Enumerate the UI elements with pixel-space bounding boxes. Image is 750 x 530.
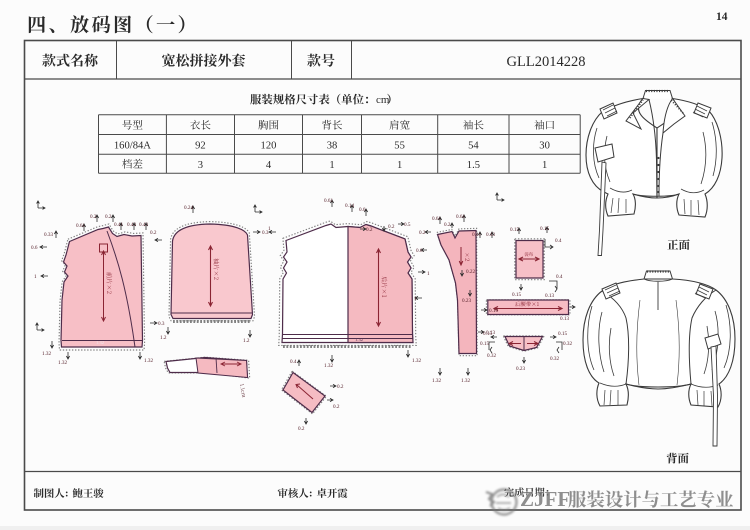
svg-text:1: 1 xyxy=(329,160,334,171)
svg-text::: : xyxy=(65,489,69,500)
svg-text:0.22: 0.22 xyxy=(466,269,475,275)
svg-text:1.5: 1.5 xyxy=(467,160,480,171)
svg-text:0.2: 0.2 xyxy=(366,227,373,233)
svg-text:0.6: 0.6 xyxy=(359,207,366,213)
svg-text:cm: cm xyxy=(376,94,390,106)
svg-text:0.23: 0.23 xyxy=(516,366,525,372)
svg-text:0.23: 0.23 xyxy=(462,298,471,304)
svg-text:0.41: 0.41 xyxy=(114,222,123,228)
svg-text:0.43: 0.43 xyxy=(486,232,495,238)
svg-text:1: 1 xyxy=(397,160,402,171)
svg-text:1.32: 1.32 xyxy=(58,360,67,366)
svg-text::: : xyxy=(309,489,313,500)
svg-text:55: 55 xyxy=(394,141,405,152)
svg-text:0.33: 0.33 xyxy=(44,232,53,238)
svg-text:0.61: 0.61 xyxy=(76,223,85,229)
svg-text:160/84A: 160/84A xyxy=(114,141,151,152)
svg-text:92: 92 xyxy=(195,141,206,152)
svg-text:0.41: 0.41 xyxy=(472,232,481,238)
svg-text:1.32: 1.32 xyxy=(412,358,421,364)
svg-text:0.2: 0.2 xyxy=(90,214,97,220)
svg-text:ZJFF: ZJFF xyxy=(520,487,570,511)
svg-text:0.32: 0.32 xyxy=(487,353,496,359)
svg-text:14: 14 xyxy=(716,11,728,23)
svg-text:1: 1 xyxy=(542,160,547,171)
svg-text:0.2: 0.2 xyxy=(419,230,426,236)
svg-text:0.2: 0.2 xyxy=(337,384,344,390)
svg-text:0.15: 0.15 xyxy=(512,292,521,298)
svg-text:54: 54 xyxy=(468,141,479,152)
svg-text:0.24: 0.24 xyxy=(184,205,193,211)
svg-text:1.32: 1.32 xyxy=(432,378,441,384)
svg-text:1.32: 1.32 xyxy=(42,351,51,357)
svg-text:0.2: 0.2 xyxy=(298,426,305,432)
svg-text:38: 38 xyxy=(327,141,338,152)
svg-text:0.6: 0.6 xyxy=(416,248,423,254)
svg-text:0.43: 0.43 xyxy=(127,222,136,228)
svg-text:0.3: 0.3 xyxy=(158,321,165,327)
svg-text:0.13: 0.13 xyxy=(560,316,569,322)
svg-text:0.14: 0.14 xyxy=(345,203,354,209)
svg-text:3: 3 xyxy=(198,160,203,171)
svg-text:1.32: 1.32 xyxy=(355,337,364,342)
svg-text:1.32: 1.32 xyxy=(461,378,470,384)
svg-text:0.2: 0.2 xyxy=(388,224,395,230)
svg-text:0.61: 0.61 xyxy=(456,214,465,220)
svg-text:0.15: 0.15 xyxy=(540,226,549,232)
svg-text:0.43: 0.43 xyxy=(139,222,148,228)
svg-text:1.2: 1.2 xyxy=(160,335,167,341)
svg-text:0.15: 0.15 xyxy=(510,227,519,233)
svg-text:0.15: 0.15 xyxy=(483,331,492,337)
svg-text:1.2: 1.2 xyxy=(243,338,250,344)
svg-text:0.10: 0.10 xyxy=(489,308,498,314)
svg-text:0.61: 0.61 xyxy=(324,198,333,204)
svg-text:0.15: 0.15 xyxy=(558,331,567,337)
svg-text:1.32: 1.32 xyxy=(144,358,153,364)
svg-text:0.4: 0.4 xyxy=(290,359,297,365)
svg-text:1: 1 xyxy=(34,274,37,280)
svg-text:1: 1 xyxy=(268,226,271,232)
svg-text:0.61: 0.61 xyxy=(432,216,441,222)
svg-text:0.2: 0.2 xyxy=(333,404,340,410)
svg-text:120: 120 xyxy=(261,141,277,152)
svg-text:0.13: 0.13 xyxy=(545,293,554,299)
svg-text:0.4: 0.4 xyxy=(556,274,563,280)
svg-text:1.32: 1.32 xyxy=(96,340,105,345)
svg-text:0.5: 0.5 xyxy=(404,222,411,228)
svg-text:0.2: 0.2 xyxy=(105,214,112,220)
svg-text:0.6: 0.6 xyxy=(31,245,38,251)
svg-text:0.32: 0.32 xyxy=(563,341,572,347)
svg-text:1: 1 xyxy=(427,271,430,277)
svg-text:30: 30 xyxy=(539,141,550,152)
svg-text:0.15: 0.15 xyxy=(480,341,489,347)
svg-text:1.32: 1.32 xyxy=(324,363,333,369)
svg-text:0.4: 0.4 xyxy=(555,238,562,244)
svg-text:0.32: 0.32 xyxy=(550,356,559,362)
svg-text:0.2: 0.2 xyxy=(150,230,157,236)
svg-text:0.2: 0.2 xyxy=(444,222,451,228)
svg-text:1: 1 xyxy=(414,296,417,302)
svg-text:GLL2014228: GLL2014228 xyxy=(507,54,586,70)
svg-text:4: 4 xyxy=(266,160,272,171)
